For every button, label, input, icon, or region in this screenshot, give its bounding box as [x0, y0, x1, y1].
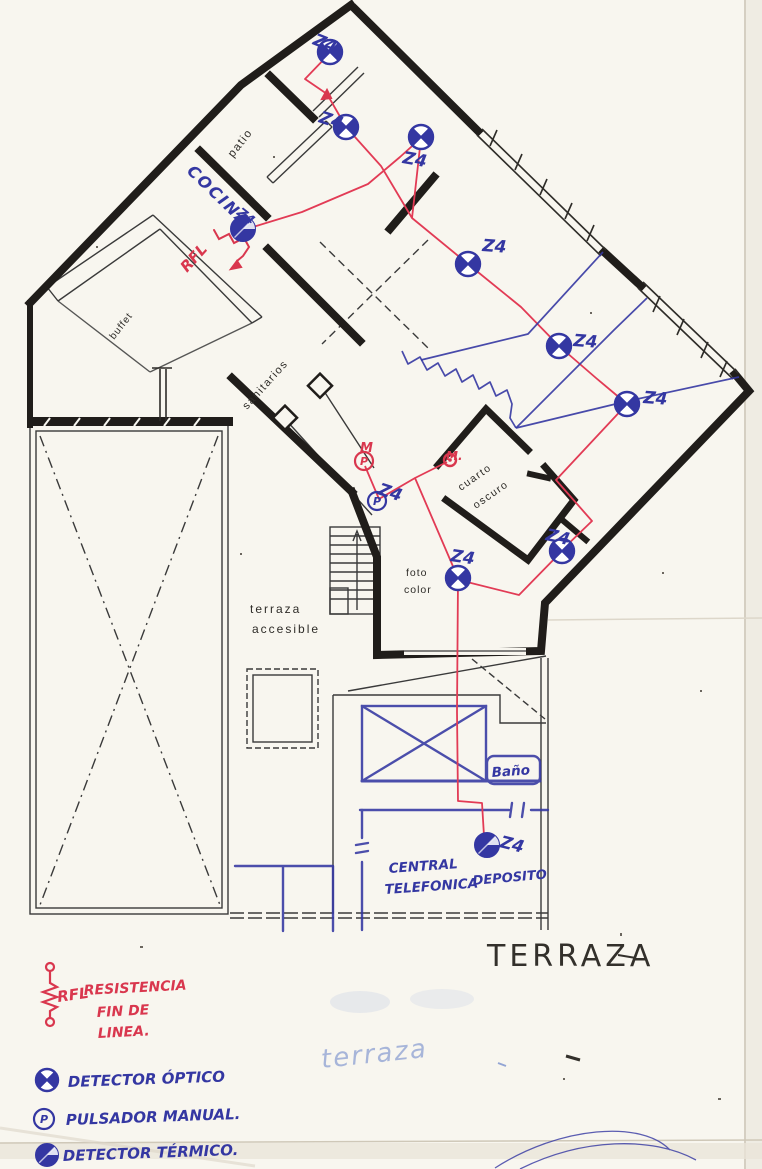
optical-detector-symbol: [547, 334, 571, 358]
legend-optical-detector-symbol: [36, 1069, 58, 1091]
zone-label: Z4: [481, 236, 507, 258]
pulsador-m2-label: M.: [446, 449, 463, 463]
svg-text:P: P: [360, 455, 368, 468]
optical-detector-symbol: [446, 566, 470, 590]
optical-detector-symbol: [409, 125, 433, 149]
legend-rfl-line3: LINEA.: [97, 1023, 150, 1042]
zone-label: Z4: [642, 388, 668, 410]
room-label-accesible: accesible: [252, 622, 320, 636]
room-label-color: color: [404, 584, 432, 596]
room-label-terraza: terraza: [250, 602, 301, 616]
heat-detector-symbol: [475, 833, 499, 857]
room-label-bano: Baño: [491, 762, 530, 781]
pulsador-m-label: M: [360, 441, 373, 456]
zone-label: Z4: [572, 331, 598, 353]
optical-detector-symbol: [615, 392, 639, 416]
floor-plan-drawing: PP Z4Z4Z4Z4Z4Z4Z4Z4Z4Z4 patio buffet san…: [0, 0, 762, 1169]
legend-rfl-line2: FIN DE: [96, 1002, 150, 1021]
optical-detector-symbol: [456, 252, 480, 276]
svg-text:P: P: [40, 1113, 48, 1126]
zone-label: Z4: [448, 546, 476, 569]
legend-heat-detector-symbol: [36, 1144, 58, 1166]
room-label-foto: foto: [406, 567, 428, 579]
scanned-floor-plan: PP Z4Z4Z4Z4Z4Z4Z4Z4Z4Z4 patio buffet san…: [0, 0, 762, 1169]
